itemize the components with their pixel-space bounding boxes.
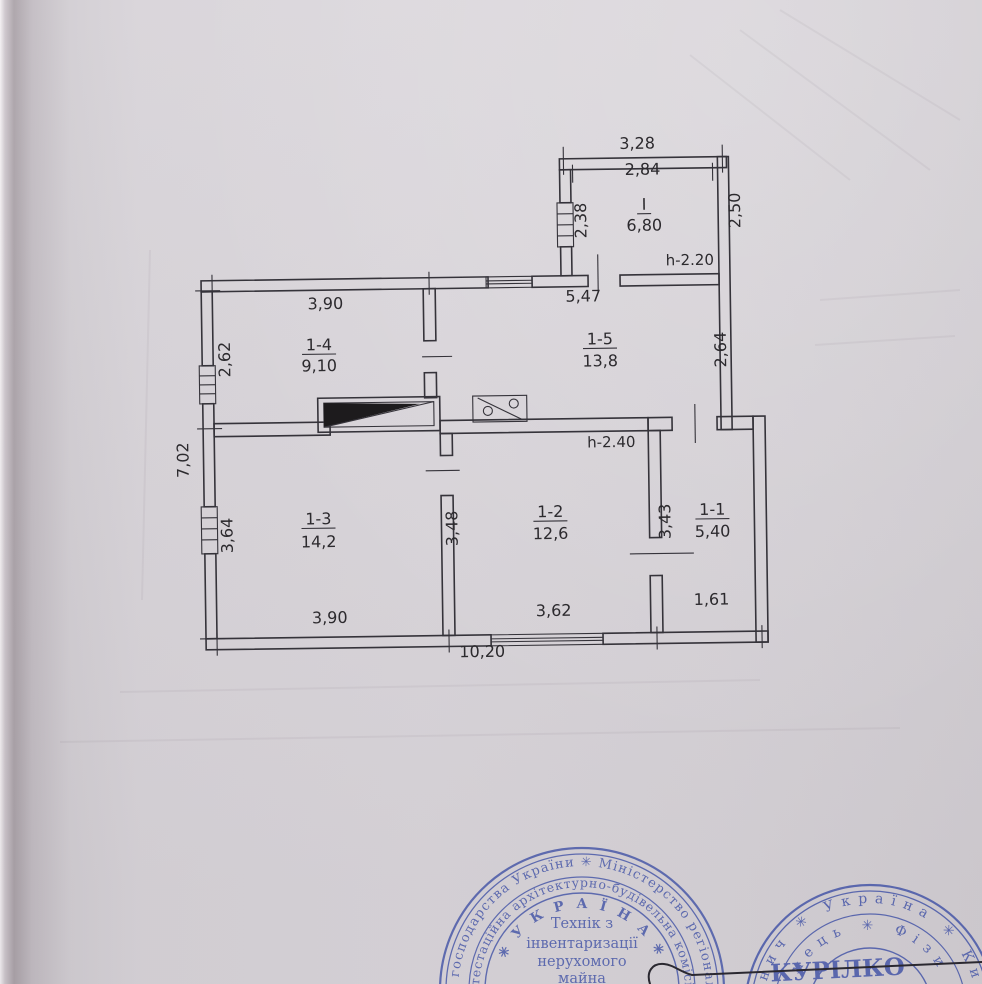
stamp1-line3: нерухомого	[537, 954, 626, 970]
annex-dim-right: 2,50	[725, 192, 744, 228]
plan-labels: 3,28 2,84 2,38 2,50 I 6,80 h-2.20 3,90 1…	[169, 132, 750, 665]
overall-dim-bottom: 10,20	[459, 642, 505, 662]
room13-dim-left: 3,64	[217, 518, 236, 554]
furnace-symbol	[318, 397, 440, 433]
room12-dim-bottom: 3,62	[536, 601, 572, 620]
dimension-ticks	[193, 144, 762, 656]
top-wall-window	[486, 276, 532, 288]
annex-height-note: h-2.20	[665, 251, 714, 270]
room11-number: 1-1	[699, 500, 725, 519]
room14-number: 1-4	[306, 335, 332, 354]
stamp1-ring-outer-text: ого господарства України ✳ Міністерство …	[0, 0, 717, 984]
stove-symbol	[473, 395, 527, 422]
annex-room-number: I	[642, 195, 647, 214]
room14-area: 9,10	[301, 356, 337, 375]
lower-right-wall	[753, 416, 768, 642]
room14-dim-top: 3,90	[307, 294, 343, 313]
scanned-floor-plan-page: 3,28 2,84 2,38 2,50 I 6,80 h-2.20 3,90 1…	[0, 0, 982, 984]
stamp1-ring-middle-text: Атестаційна архітектурно-будівельна комі…	[0, 0, 697, 984]
left-window-2	[201, 507, 218, 554]
annex-dim-left: 2,38	[571, 203, 590, 239]
room15-dim-top: 5,47	[565, 286, 601, 305]
stamp1-center-text: Технік з інвентаризації нерухомого майна	[526, 916, 638, 984]
room12-height-note: h-2.40	[587, 433, 636, 452]
room15-area: 13,8	[582, 351, 618, 370]
room11-dim-left: 3,43	[655, 503, 674, 539]
stamp-personal: янич ✳ Україна ✳ Киї мець ✳ Фізи КУРІЛКО	[745, 885, 982, 984]
room15-number: 1-5	[587, 329, 613, 348]
room13-dim-bottom: 3,90	[312, 608, 348, 627]
room14-dim-left: 2,62	[215, 342, 234, 378]
annex-area: 6,80	[626, 215, 662, 234]
stamp1-line4: майна	[558, 971, 606, 984]
annex-dim-top-inner: 2,84	[625, 159, 661, 178]
stamp-certification: ого господарства України ✳ Міністерство …	[0, 0, 724, 984]
room11-top-wall	[648, 403, 754, 443]
room12-area: 12,6	[533, 524, 569, 543]
overall-dim-left: 7,02	[173, 442, 192, 478]
left-window-1	[199, 366, 216, 404]
room13-number: 1-3	[305, 509, 331, 528]
floor-plan: 3,28 2,84 2,38 2,50 I 6,80 h-2.20 3,90 1…	[169, 132, 768, 665]
room15-dim-right: 2,64	[711, 332, 730, 368]
room11-dim-bottom: 1,61	[694, 590, 730, 609]
bottom-window	[491, 633, 603, 646]
room12-number: 1-2	[537, 502, 563, 521]
floor-plan-svg: 3,28 2,84 2,38 2,50 I 6,80 h-2.20 3,90 1…	[0, 0, 982, 984]
paper-bleed-through	[60, 10, 960, 742]
annex-dim-top-outer: 3,28	[619, 134, 655, 153]
room12-dim-left: 3,48	[442, 510, 461, 546]
middle-wall	[214, 418, 648, 437]
room11-area: 5,40	[695, 522, 731, 541]
wall-14-15	[421, 288, 453, 397]
stamp1-line2: інвентаризації	[526, 936, 638, 952]
room13-area: 14,2	[301, 532, 337, 551]
main-top-wall	[201, 274, 719, 292]
stamp1-line1: Технік з	[551, 916, 613, 932]
